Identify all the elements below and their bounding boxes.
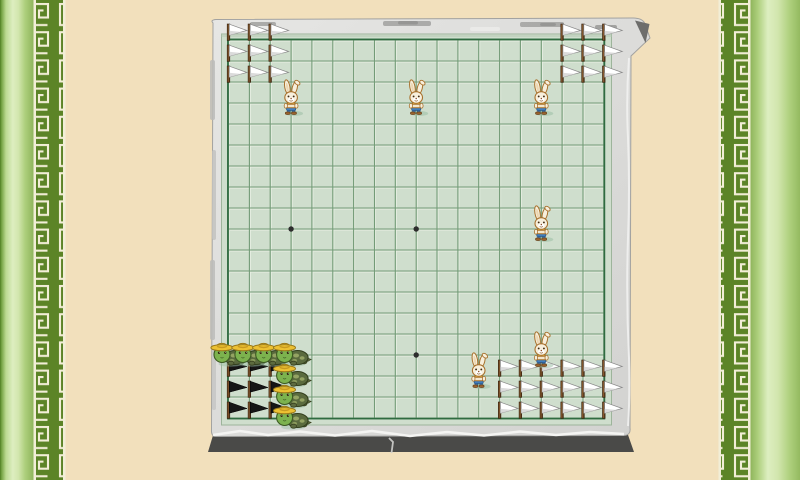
left-border-decoration — [0, 0, 66, 480]
greek-key-strip-right — [721, 0, 748, 480]
game-stage — [0, 0, 800, 480]
star-point — [414, 352, 419, 357]
greek-key-strip-left — [36, 0, 63, 480]
right-border-decoration — [719, 0, 800, 480]
star-point — [414, 226, 419, 231]
star-point — [288, 226, 293, 231]
game-canvas — [0, 0, 800, 480]
